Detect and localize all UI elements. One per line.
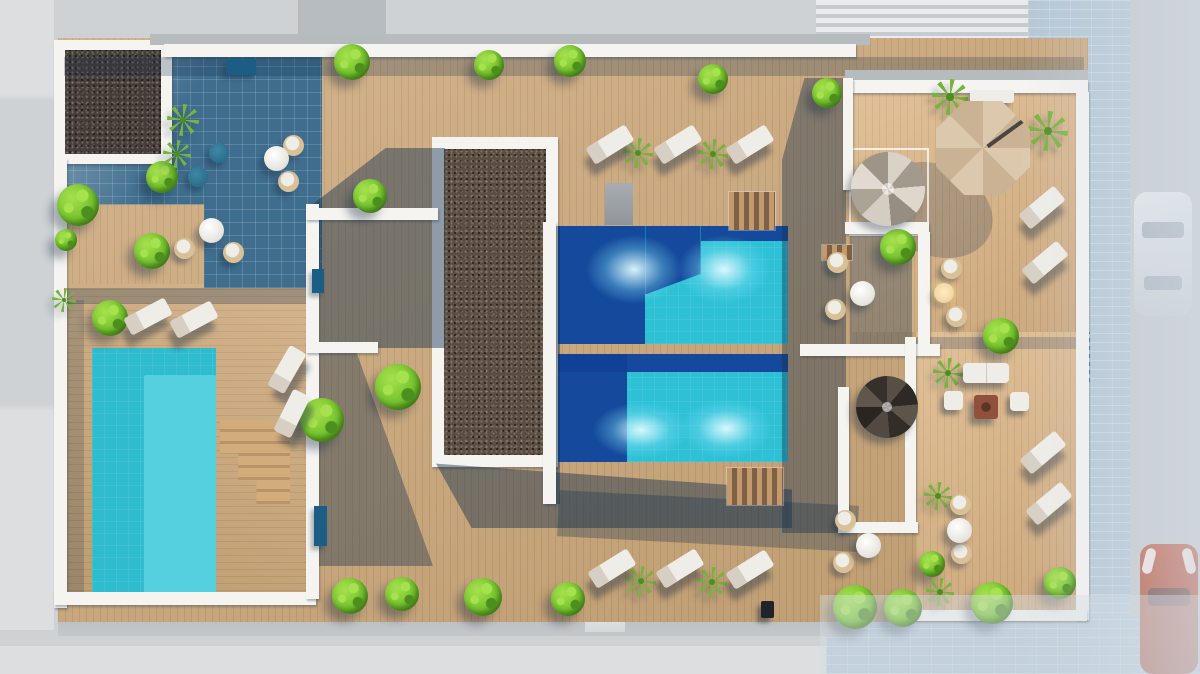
bush xyxy=(55,229,77,251)
armchair xyxy=(1010,392,1029,411)
bush xyxy=(92,300,128,336)
fire-table xyxy=(974,395,998,419)
lounger xyxy=(653,124,702,164)
bush xyxy=(474,50,504,80)
bush xyxy=(884,589,922,627)
furniture-layer xyxy=(0,0,1200,674)
lounger xyxy=(123,297,173,335)
wicker-chair xyxy=(950,494,971,515)
wicker-chair xyxy=(835,510,856,531)
wicker-chair xyxy=(278,171,299,192)
umbrella xyxy=(936,101,1030,195)
palm xyxy=(698,139,728,169)
palm xyxy=(697,567,727,597)
wicker-chair xyxy=(833,552,854,573)
palm xyxy=(926,578,954,606)
lounger xyxy=(1025,481,1072,525)
wicker-chair xyxy=(951,543,972,564)
lounger xyxy=(267,344,306,393)
planter xyxy=(312,269,324,293)
lounger xyxy=(169,300,219,338)
bush xyxy=(334,44,370,80)
bush xyxy=(833,585,877,629)
lounger xyxy=(1021,240,1068,284)
pouf xyxy=(188,167,208,187)
round-table xyxy=(850,281,875,306)
bush xyxy=(385,577,419,611)
speaker xyxy=(761,601,774,618)
lounger xyxy=(1018,185,1065,229)
bush xyxy=(971,582,1013,624)
wicker-chair xyxy=(825,299,846,320)
wicker-chair xyxy=(827,252,848,273)
spiral-light xyxy=(851,152,925,226)
rooftop-terrace-render xyxy=(0,0,1200,674)
wicker-chair xyxy=(174,238,195,259)
bush xyxy=(464,578,502,616)
sofa xyxy=(963,363,1009,383)
spiral-dark xyxy=(856,376,918,438)
round-table xyxy=(199,218,224,243)
bush xyxy=(554,45,586,77)
bush xyxy=(57,184,99,226)
bush xyxy=(375,364,421,410)
palm xyxy=(924,482,952,510)
planter xyxy=(314,506,327,546)
round-table xyxy=(947,518,972,543)
bush xyxy=(551,582,585,616)
bush xyxy=(812,78,842,108)
bush xyxy=(353,179,387,213)
armchair xyxy=(944,391,963,410)
palm xyxy=(626,566,656,596)
bush xyxy=(1044,567,1076,599)
lounger xyxy=(725,124,774,164)
wicker-chair xyxy=(946,306,967,327)
palm xyxy=(52,288,76,312)
wicker-chair xyxy=(223,242,244,263)
round-table xyxy=(264,146,289,171)
lounger xyxy=(725,549,774,589)
planter xyxy=(226,59,256,75)
bush xyxy=(983,318,1019,354)
lounger xyxy=(1019,430,1066,474)
palm xyxy=(163,140,191,168)
bench xyxy=(970,90,1014,103)
wicker-chair xyxy=(941,258,962,279)
pouf xyxy=(209,143,229,163)
lit-table xyxy=(934,283,954,303)
palm xyxy=(1028,111,1068,151)
bush xyxy=(919,551,945,577)
palm xyxy=(933,358,963,388)
bush xyxy=(134,233,170,269)
bush xyxy=(332,578,368,614)
palm xyxy=(167,104,199,136)
bush xyxy=(698,64,728,94)
bush xyxy=(880,229,916,265)
round-table xyxy=(856,533,881,558)
